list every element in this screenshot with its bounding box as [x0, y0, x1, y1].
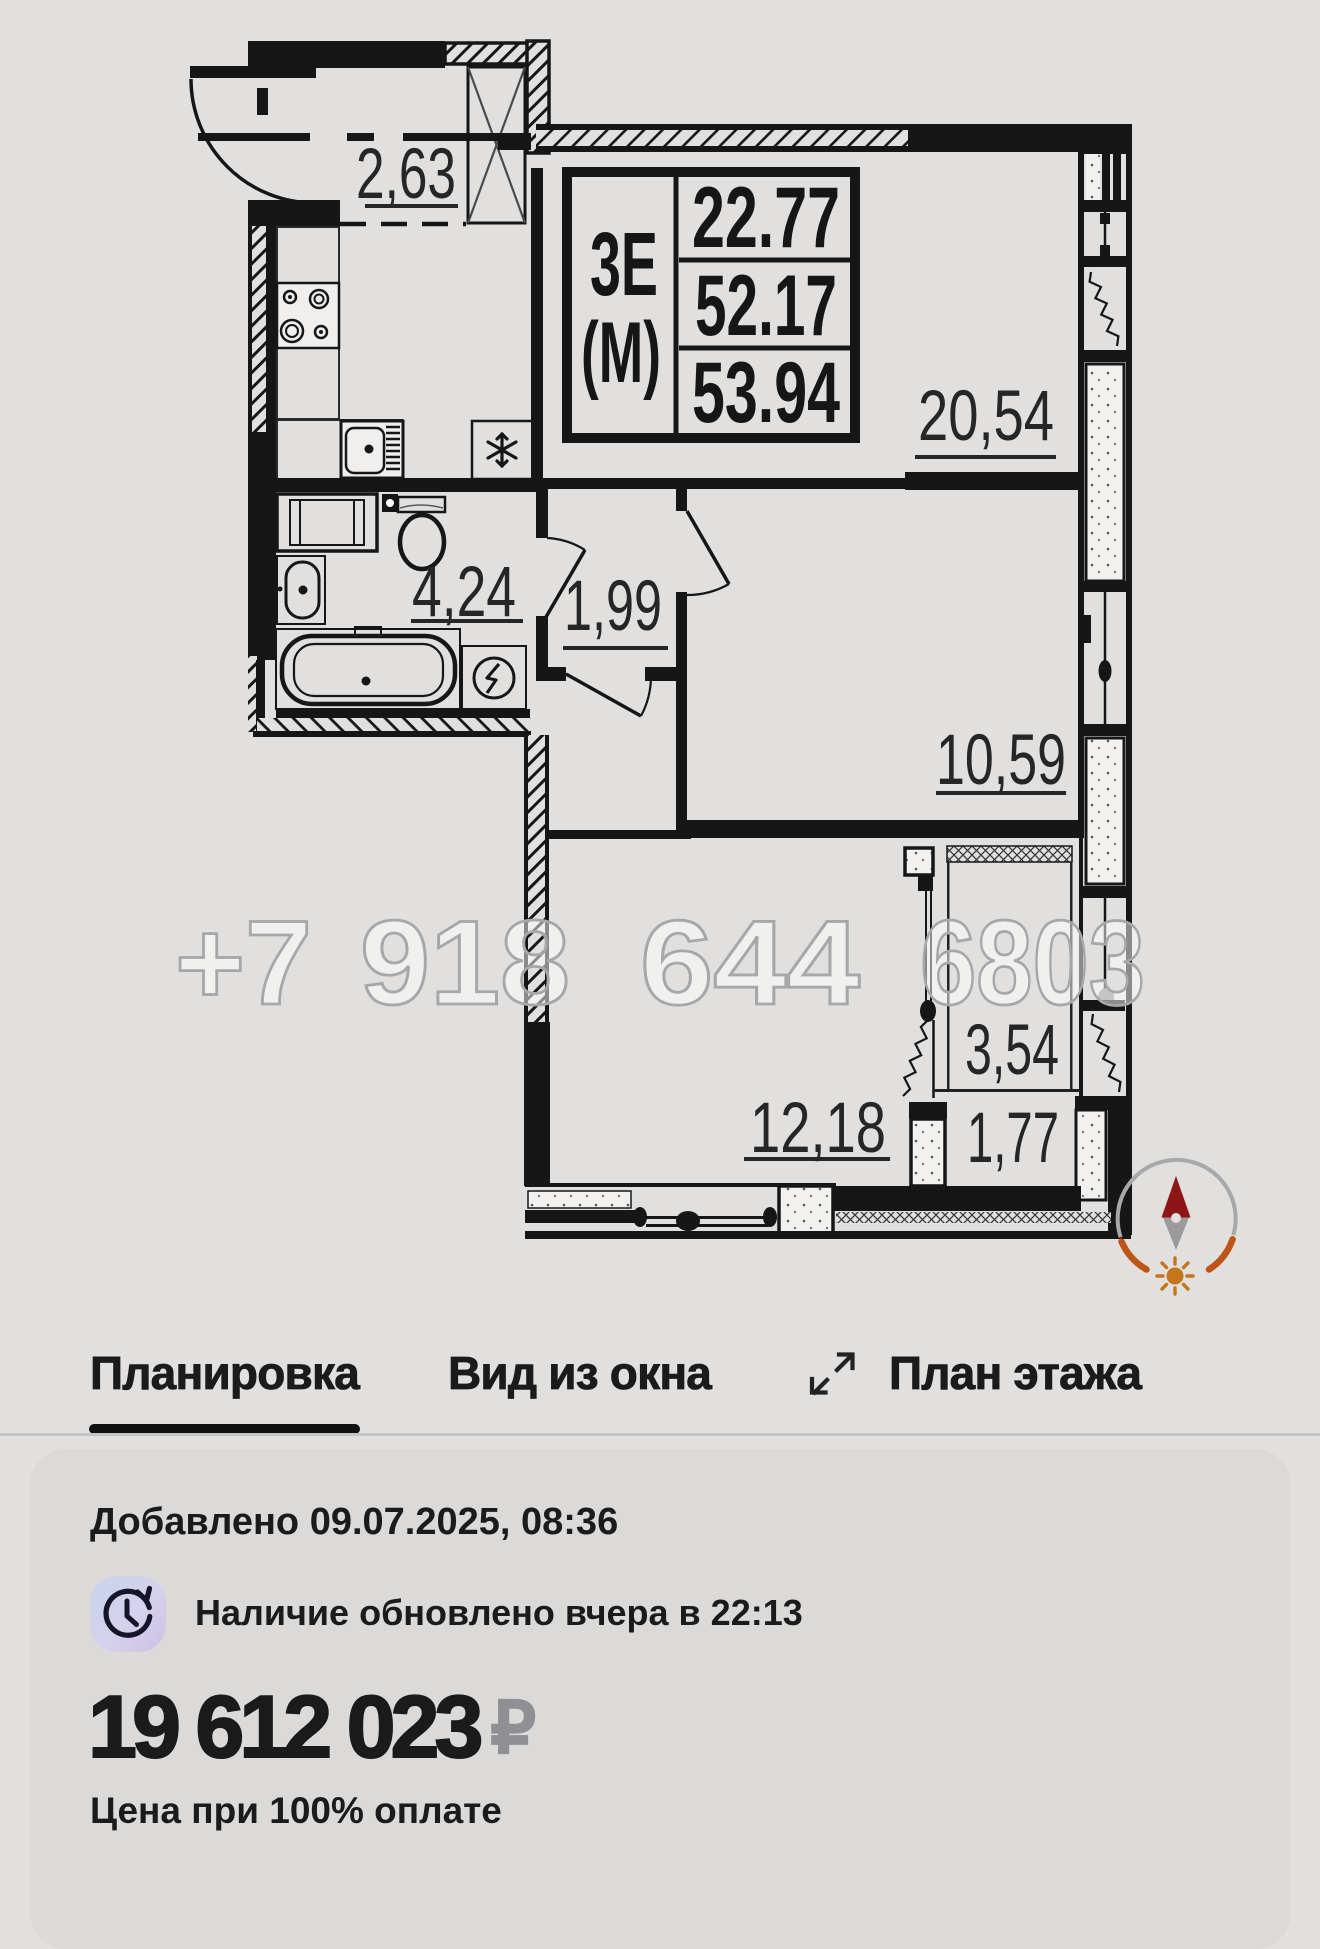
svg-text:22.77: 22.77: [692, 170, 840, 266]
svg-text:(М): (М): [581, 305, 661, 401]
svg-text:2,63: 2,63: [356, 135, 456, 214]
svg-text:+7: +7: [175, 896, 312, 1030]
svg-text:10,59: 10,59: [936, 721, 1066, 800]
svg-text:1,77: 1,77: [967, 1099, 1059, 1178]
svg-text:6803: 6803: [920, 896, 1145, 1030]
svg-text:12,18: 12,18: [750, 1089, 886, 1168]
svg-text:918: 918: [360, 896, 570, 1030]
svg-text:20,54: 20,54: [918, 377, 1054, 456]
svg-text:1,99: 1,99: [564, 567, 662, 646]
svg-text:3Е: 3Е: [590, 215, 658, 315]
svg-text:53.94: 53.94: [692, 345, 840, 441]
svg-text:644: 644: [640, 896, 860, 1030]
svg-text:52.17: 52.17: [695, 258, 837, 354]
